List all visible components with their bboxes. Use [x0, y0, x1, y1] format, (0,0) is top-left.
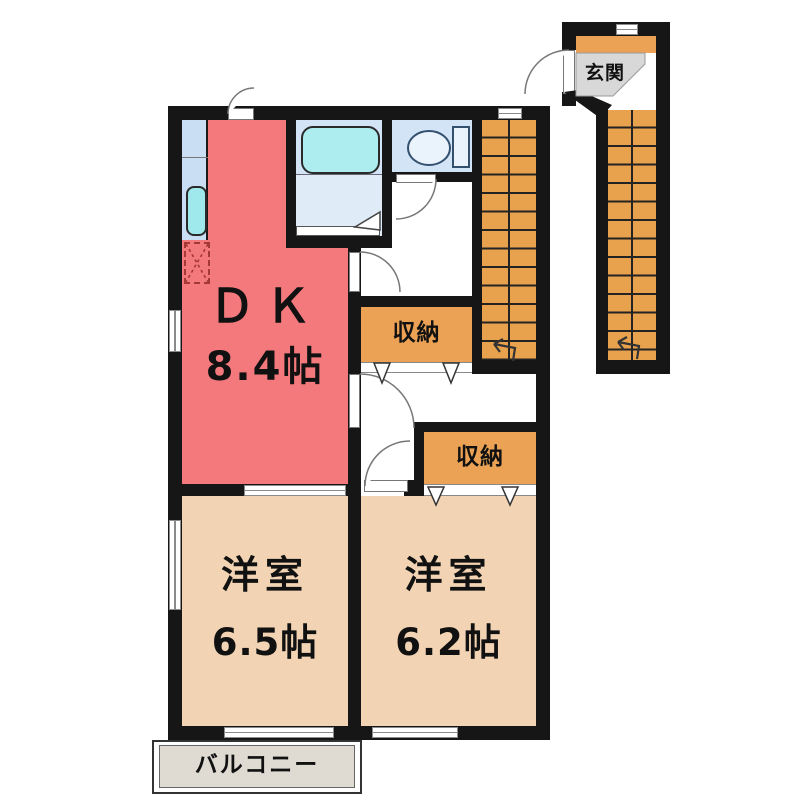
room-dk-label: ＤＫ — [182, 283, 348, 329]
door-leaf — [396, 174, 436, 183]
wall — [168, 106, 550, 120]
window — [169, 310, 181, 352]
room-western-1-size: 6.5帖 — [182, 624, 348, 661]
wall — [562, 92, 576, 106]
room-western-2-size: 6.2帖 — [361, 624, 536, 661]
wall — [596, 360, 670, 374]
room-western-2-label: 洋室 — [361, 556, 536, 594]
door-leaf — [364, 480, 408, 492]
wall — [348, 236, 361, 726]
entrance-porch-strip — [576, 36, 656, 53]
closet-1-label: 収納 — [361, 322, 472, 345]
sliding-partition — [244, 485, 346, 496]
window — [616, 24, 638, 35]
wall — [414, 422, 550, 432]
room-western-2-floor — [361, 496, 536, 726]
window — [498, 108, 522, 119]
floor-plan: ＤＫ 8.4帖 洋室 6.5帖 洋室 6.2帖 収納 収納 玄関 バルコニー — [0, 0, 800, 800]
door-swing-dk-hall-upper — [360, 252, 400, 292]
door-leaf — [228, 108, 254, 120]
kitchen-sink-icon — [186, 186, 207, 236]
wall — [414, 422, 424, 496]
door-swing-dk-hall-lower — [360, 374, 414, 428]
door-swing-toilet — [396, 179, 436, 219]
bath-divider-line — [296, 174, 382, 175]
staircase-indoor-centerline — [508, 120, 510, 360]
wall — [286, 120, 296, 248]
closet-1-door-strip — [361, 362, 472, 373]
wall — [596, 106, 608, 374]
window — [169, 520, 181, 610]
room-western-1-label: 洋室 — [182, 556, 348, 594]
wall — [472, 120, 482, 372]
kitchen-counter-divider — [182, 157, 208, 158]
window — [372, 727, 458, 738]
toilet-tank-icon — [452, 126, 470, 168]
door-leaf — [349, 252, 360, 292]
refrigerator-space — [184, 242, 210, 284]
room-dk-size: 8.4帖 — [178, 347, 352, 387]
wall — [656, 22, 670, 374]
door-leaf — [563, 50, 575, 94]
wall — [361, 296, 482, 307]
closet-2-label: 収納 — [424, 446, 536, 469]
entrance-label: 玄関 — [576, 64, 634, 83]
washstand-icon — [296, 226, 380, 236]
balcony-label: バルコニー — [159, 754, 355, 777]
wall — [562, 36, 576, 50]
staircase-outdoor-centerline — [631, 110, 633, 360]
window — [224, 727, 334, 738]
bathtub-icon — [301, 126, 380, 174]
wall — [286, 236, 392, 248]
wall — [168, 106, 182, 740]
room-western-1-floor — [182, 496, 348, 726]
wall — [472, 360, 550, 374]
closet-2-door-strip — [424, 484, 536, 496]
